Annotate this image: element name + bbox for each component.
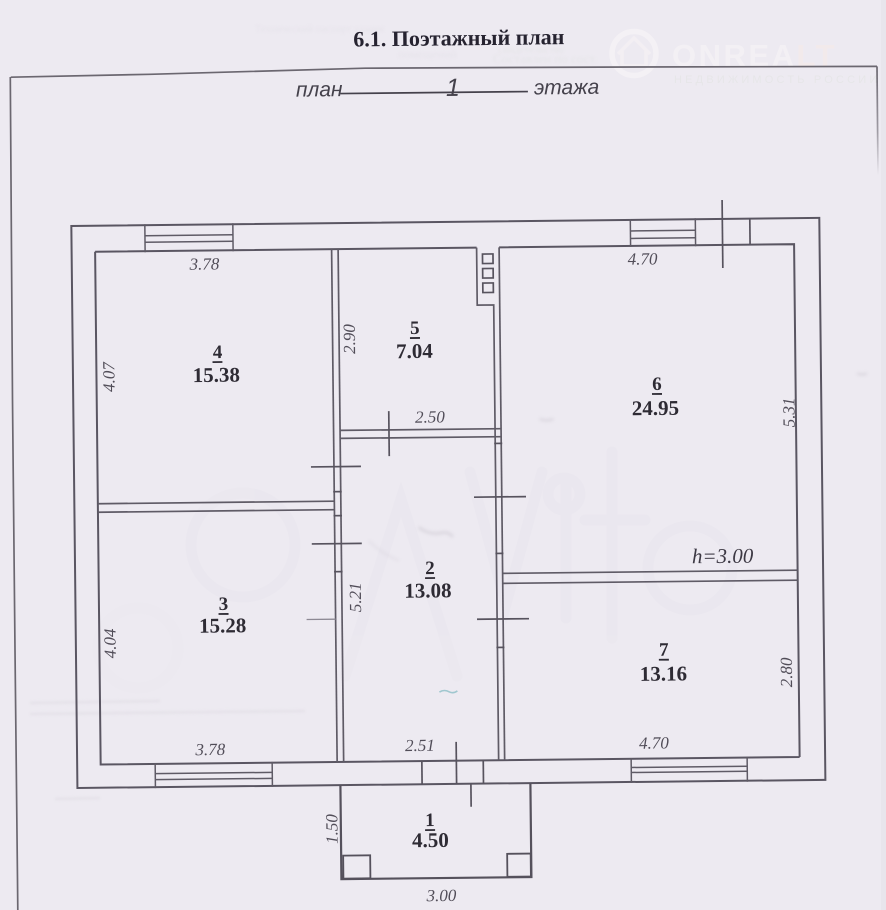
svg-text:7: 7 [659,640,669,661]
svg-text:6.1. Поэтажный план: 6.1. Поэтажный план [353,24,565,51]
svg-text:1.50: 1.50 [322,814,341,844]
svg-text:этажа: этажа [534,76,600,100]
svg-text:4: 4 [213,342,223,363]
svg-text:13.16: 13.16 [640,661,688,686]
svg-text:2.90: 2.90 [340,324,359,354]
svg-text:15.38: 15.38 [193,363,241,388]
svg-text:3: 3 [219,594,229,615]
svg-text:2.50: 2.50 [415,407,445,426]
svg-text:4.07: 4.07 [99,361,118,392]
svg-text:13.08: 13.08 [404,578,452,603]
svg-text:24.95: 24.95 [632,396,680,421]
svg-text:h=3.00: h=3.00 [692,544,754,569]
svg-text:4.50: 4.50 [412,828,449,852]
svg-text:4.04: 4.04 [100,628,119,658]
svg-text:5.31: 5.31 [779,397,798,427]
svg-text:7.04: 7.04 [396,339,434,363]
svg-text:4.70: 4.70 [639,733,669,752]
svg-text:2: 2 [425,558,435,579]
svg-text:5: 5 [410,318,420,339]
svg-text:5.21: 5.21 [346,582,365,612]
svg-text:НЕДВИЖИМОСТЬ РОССИИ: НЕДВИЖИМОСТЬ РОССИИ [674,74,880,86]
svg-text:ONREALT: ONREALT [672,38,837,73]
svg-text:4.70: 4.70 [628,249,658,268]
svg-text:6: 6 [652,374,662,395]
svg-text:15.28: 15.28 [199,613,247,638]
svg-text:3.00: 3.00 [425,886,456,905]
svg-text:3.78: 3.78 [188,254,219,273]
svg-text:2.51: 2.51 [405,736,435,755]
svg-text:2.80: 2.80 [777,657,796,687]
svg-text:1: 1 [446,74,460,102]
svg-text:план: план [296,78,343,102]
svg-text:3.78: 3.78 [194,740,225,759]
